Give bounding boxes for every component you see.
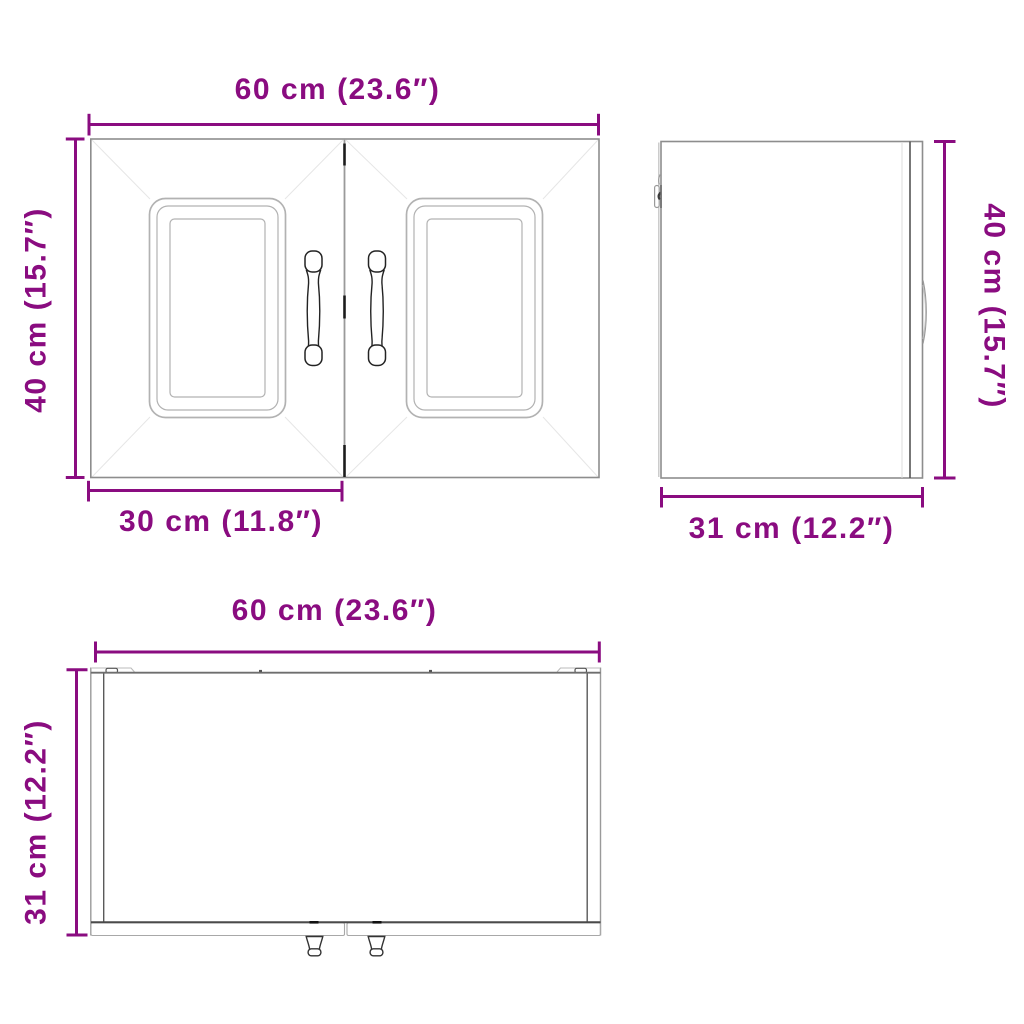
svg-text:31 cm (12.2″): 31 cm (12.2″) — [689, 512, 895, 545]
svg-text:31 cm (12.2″): 31 cm (12.2″) — [20, 719, 53, 925]
svg-text:60 cm (23.6″): 60 cm (23.6″) — [232, 594, 438, 627]
svg-text:30 cm (11.8″): 30 cm (11.8″) — [119, 505, 323, 538]
svg-text:40 cm (15.7″): 40 cm (15.7″) — [978, 203, 1011, 409]
svg-text:40 cm (15.7″): 40 cm (15.7″) — [20, 207, 53, 413]
svg-text:60 cm (23.6″): 60 cm (23.6″) — [235, 73, 441, 106]
